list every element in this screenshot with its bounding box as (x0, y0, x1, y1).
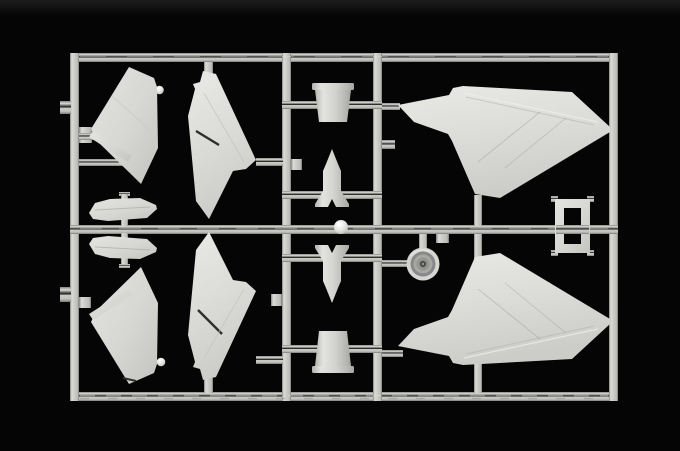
gate-tab-inner-2 (79, 297, 91, 308)
stub-delta-upper-tip (382, 103, 400, 110)
cowl-rim (312, 83, 354, 90)
sprue-ball-stub-lower (157, 358, 166, 367)
cowl-rim (312, 366, 354, 373)
frame-rail-top (70, 53, 618, 62)
sprue-photo (0, 0, 680, 451)
sphere-highlight (337, 223, 341, 227)
pin-cap-bottom (119, 264, 130, 268)
gate-tab-midrail (436, 234, 449, 243)
photo-top-edge-glow (0, 0, 680, 16)
stub-wing-inner-right-2 (256, 356, 283, 364)
part-canopy-frame (551, 196, 594, 256)
gate-tab-center-left (291, 159, 302, 170)
stub-delta-lower-bottom (474, 361, 482, 393)
wheel-hub-dot (422, 263, 424, 265)
part-intake-cowl-lower (312, 331, 354, 373)
stub-delta-lower-tip (382, 350, 403, 357)
cowl-body (315, 90, 351, 122)
stub-wheel-left (382, 260, 410, 267)
frame-rail-pass-through (556, 225, 589, 234)
cowl-body (315, 331, 351, 366)
part-sphere (334, 220, 348, 234)
gate-tab-right-1 (382, 140, 395, 149)
stub-wing-inner-bottom (204, 378, 213, 393)
gate-tab-outer-upper (60, 101, 71, 114)
gate-tab-center-left-2 (271, 294, 282, 306)
stub-delta-upper-bottom (474, 195, 482, 226)
part-intake-cowl-upper (312, 83, 354, 122)
gate-tab-outer-lower (60, 287, 71, 302)
frame-rail-bottom (70, 392, 618, 401)
stub-wing-inner-right (256, 158, 283, 166)
part-wheel (407, 248, 440, 281)
